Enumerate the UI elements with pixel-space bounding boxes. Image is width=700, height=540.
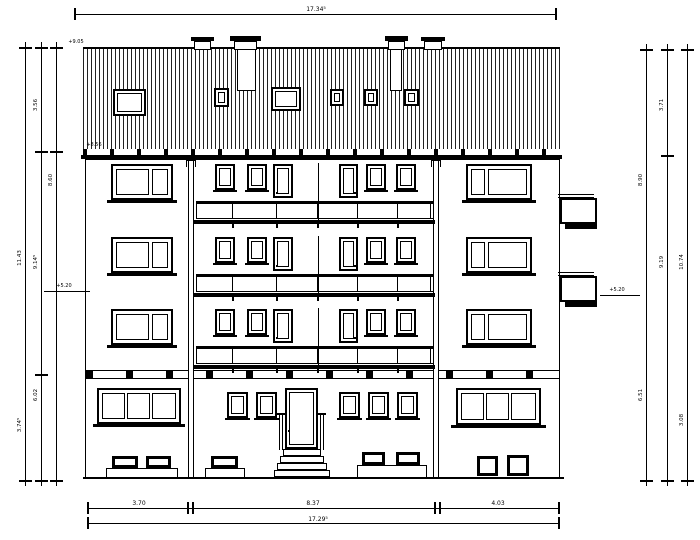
slab-support	[397, 369, 399, 373]
window-pane	[102, 393, 125, 419]
window-right-floor-1	[466, 164, 532, 200]
window-pane	[370, 168, 382, 186]
window-sill	[107, 200, 177, 203]
window-pane	[334, 93, 340, 102]
dim-line-right-3	[687, 44, 688, 486]
chimney-3-shaft	[390, 49, 402, 91]
railing-post	[196, 277, 197, 292]
dim-line-top	[75, 14, 557, 15]
railing-post	[232, 277, 233, 292]
window-pane	[219, 313, 231, 331]
slab-support	[397, 224, 399, 228]
window-pane	[488, 169, 527, 195]
window-balcony	[215, 164, 235, 190]
slab-support	[232, 297, 234, 301]
dim-tick	[35, 47, 48, 49]
dim-tick	[558, 502, 560, 514]
balcony-divider	[318, 163, 319, 222]
window-balcony	[396, 309, 416, 335]
dim-tick	[87, 502, 89, 514]
roof-window-2	[214, 88, 229, 107]
window-sill	[394, 263, 418, 265]
side-balcony-2-base	[565, 302, 597, 307]
window-pane	[116, 169, 149, 195]
window-pane	[400, 241, 412, 259]
window-pane	[343, 241, 354, 267]
window-pane	[152, 169, 168, 195]
window-sill	[395, 418, 420, 420]
window-pane	[486, 393, 509, 420]
step	[283, 449, 321, 456]
roof-hatching	[83, 49, 560, 149]
window-pane	[231, 396, 244, 414]
window-pane	[116, 242, 149, 268]
level-line-right	[600, 295, 640, 296]
railing-post	[276, 204, 277, 219]
chimney-4	[424, 41, 442, 50]
window-sill	[462, 273, 536, 276]
slab-support	[232, 369, 234, 373]
roof-window-1	[113, 89, 146, 116]
window-ground	[227, 392, 248, 418]
window-sill	[462, 200, 536, 203]
window-sill	[107, 273, 177, 276]
ground-line	[83, 477, 564, 479]
window-pane	[117, 93, 142, 112]
window-sill	[394, 335, 418, 337]
railing-post	[397, 349, 398, 364]
slab-support	[317, 369, 319, 373]
dim-tick	[74, 8, 76, 20]
dim-tick	[434, 502, 436, 514]
basement-window	[477, 456, 498, 476]
window-balcony	[247, 237, 267, 263]
window-pane	[400, 313, 412, 331]
chimney-1	[194, 41, 211, 50]
window-sill	[245, 190, 269, 192]
window-pane	[370, 241, 382, 259]
railing-post	[232, 204, 233, 219]
dim-tick	[50, 47, 63, 49]
window-ground-right	[456, 388, 541, 425]
railing-post	[357, 349, 358, 364]
window-pane	[343, 168, 354, 194]
window-sill	[366, 418, 391, 420]
window-sill	[245, 335, 269, 337]
window-sill	[213, 190, 237, 192]
downpipe-right	[433, 160, 439, 478]
window-right-floor-3	[466, 309, 532, 345]
balcony-divider	[318, 236, 319, 295]
window-right-floor-2	[466, 237, 532, 273]
dim-tick	[558, 517, 560, 529]
door-handle	[276, 337, 278, 339]
window-pane	[368, 93, 374, 102]
dim-line-right-2	[667, 44, 668, 486]
window-pane	[372, 396, 385, 414]
door-handle	[354, 337, 356, 339]
window-pane	[152, 242, 168, 268]
railing-post	[430, 204, 431, 219]
door-handle	[354, 265, 356, 267]
window-left-floor-3	[111, 309, 173, 345]
window-balcony	[366, 164, 386, 190]
window-sill	[254, 418, 279, 420]
basement-vent	[396, 452, 420, 465]
level-line-left	[44, 291, 90, 292]
dim-tick	[661, 49, 674, 51]
side-balcony-2	[560, 276, 597, 302]
dim-tick	[50, 480, 63, 482]
basement-vent	[112, 456, 138, 468]
window-pane	[152, 314, 168, 340]
window-sill	[337, 418, 362, 420]
window-sill	[364, 190, 388, 192]
ridge-line	[83, 47, 560, 49]
side-balcony-1-base	[565, 224, 597, 229]
step	[274, 470, 330, 477]
dim-tick	[50, 151, 63, 153]
window-sill	[93, 424, 185, 427]
window-balcony	[247, 164, 267, 190]
window-pane	[277, 313, 289, 339]
window-ground	[368, 392, 389, 418]
roof-window-5	[364, 89, 378, 106]
window-balcony	[247, 309, 267, 335]
window-pane	[251, 241, 263, 259]
basement-window	[507, 455, 529, 476]
slab-support	[232, 224, 234, 228]
window-balcony	[366, 237, 386, 263]
dim-tick	[661, 480, 674, 482]
window-left-floor-1	[111, 164, 173, 200]
dim-tick	[35, 151, 48, 153]
dim-tick	[640, 49, 653, 51]
window-pane	[251, 168, 263, 186]
dim-line-bottom-total	[88, 523, 560, 524]
dim-tick	[35, 480, 48, 482]
window-balcony	[396, 164, 416, 190]
window-balcony	[366, 309, 386, 335]
window-ground-left	[97, 388, 181, 424]
window-pane	[471, 314, 485, 340]
step	[277, 463, 327, 470]
dim-tick	[187, 502, 189, 514]
window-sill	[462, 345, 536, 348]
railing-post	[232, 349, 233, 364]
door-handle	[276, 265, 278, 267]
window-pane	[343, 313, 354, 339]
window-pane	[116, 314, 149, 340]
railing-post	[317, 277, 318, 292]
dim-tick	[681, 49, 694, 51]
basement-vent	[211, 456, 238, 468]
dim-tick	[87, 517, 89, 529]
dim-line-left-2	[41, 42, 42, 486]
railing-post	[196, 204, 197, 219]
slab-support	[357, 224, 359, 228]
entry-railing-right-cap	[318, 413, 326, 415]
window-sill	[364, 263, 388, 265]
window-sill	[107, 345, 177, 348]
basement-vent	[362, 452, 385, 465]
window-sill	[213, 335, 237, 337]
window-pane	[260, 396, 273, 414]
window-pane	[488, 314, 527, 340]
entry-railing-left	[279, 414, 283, 450]
railing-post	[397, 277, 398, 292]
dim-tick	[640, 480, 653, 482]
window-pane	[408, 93, 415, 102]
dim-tick	[19, 480, 32, 482]
downpipe-bracket-right	[431, 160, 441, 167]
window-pane	[488, 242, 527, 268]
slab-support	[357, 297, 359, 301]
window-ground	[339, 392, 360, 418]
window-pane	[400, 168, 412, 186]
window-pane	[401, 396, 414, 414]
roof-window-6	[404, 89, 419, 106]
slab-support	[357, 369, 359, 373]
window-pane	[219, 241, 231, 259]
balcony-divider	[318, 308, 319, 367]
window-balcony	[215, 237, 235, 263]
window-pane	[127, 393, 150, 419]
window-pane	[370, 313, 382, 331]
dim-line-left-1	[25, 42, 26, 486]
dim-tick	[35, 374, 48, 376]
window-ground	[256, 392, 277, 418]
window-pane	[218, 92, 225, 103]
railing-post	[430, 349, 431, 364]
door-panel	[289, 392, 314, 445]
railing-line	[196, 291, 433, 292]
window-pane	[461, 393, 484, 420]
dim-line-bottom-segments	[88, 508, 560, 509]
slab-support	[276, 369, 278, 373]
window-pane	[152, 393, 176, 419]
window-pane	[471, 169, 485, 195]
railing-post	[276, 277, 277, 292]
dim-tick	[661, 155, 674, 157]
window-balcony	[215, 309, 235, 335]
window-sill	[213, 263, 237, 265]
window-pane	[219, 168, 231, 186]
entry-railing-left-cap	[277, 413, 285, 415]
railing-post	[357, 204, 358, 219]
dim-line-right-1	[646, 44, 647, 486]
railing-post	[357, 277, 358, 292]
railing-post	[276, 349, 277, 364]
railing-line	[196, 218, 433, 219]
window-ground	[397, 392, 418, 418]
roof-window-3	[271, 87, 301, 111]
window-sill	[245, 263, 269, 265]
window-sill	[225, 418, 250, 420]
elevation-drawing: +5.20 +5.20 +9.05 +8.56 17.34⁵ 3.70 8.37…	[0, 0, 700, 540]
window-sill	[364, 335, 388, 337]
window-sill	[394, 190, 418, 192]
entry-railing-right	[320, 414, 324, 450]
slab-support	[317, 224, 319, 228]
window-sill	[451, 425, 546, 428]
window-pane	[511, 393, 536, 420]
door-handle	[354, 192, 356, 194]
step	[280, 456, 324, 463]
railing-post	[317, 204, 318, 219]
entrance-door	[285, 388, 318, 449]
slab-support	[317, 297, 319, 301]
railing-line	[196, 363, 433, 364]
slab-support	[276, 297, 278, 301]
railing-post	[317, 349, 318, 364]
window-pane	[277, 168, 289, 194]
roof-window-4	[330, 89, 344, 106]
window-pane	[275, 91, 297, 107]
floor-band	[86, 370, 559, 379]
slab-support	[397, 297, 399, 301]
dim-tick	[19, 47, 32, 49]
chimney-2-shaft	[237, 49, 256, 91]
downpipe-bracket-left	[186, 160, 196, 167]
downpipe-left	[188, 160, 194, 478]
window-left-floor-2	[111, 237, 173, 273]
window-pane	[343, 396, 356, 414]
door-handle	[288, 430, 290, 432]
dim-line-left-3	[56, 42, 57, 486]
dim-tick	[555, 8, 557, 20]
railing-post	[430, 277, 431, 292]
dim-tick	[681, 480, 694, 482]
eaves-line	[81, 155, 562, 159]
door-handle	[276, 192, 278, 194]
side-balcony-1	[560, 198, 597, 224]
slab-support	[276, 224, 278, 228]
railing-post	[397, 204, 398, 219]
window-pane	[471, 242, 485, 268]
railing-post	[196, 349, 197, 364]
window-pane	[251, 313, 263, 331]
dim-tick	[439, 502, 441, 514]
window-pane	[277, 241, 289, 267]
basement-vent	[146, 456, 171, 468]
dim-tick	[192, 502, 194, 514]
window-balcony	[396, 237, 416, 263]
